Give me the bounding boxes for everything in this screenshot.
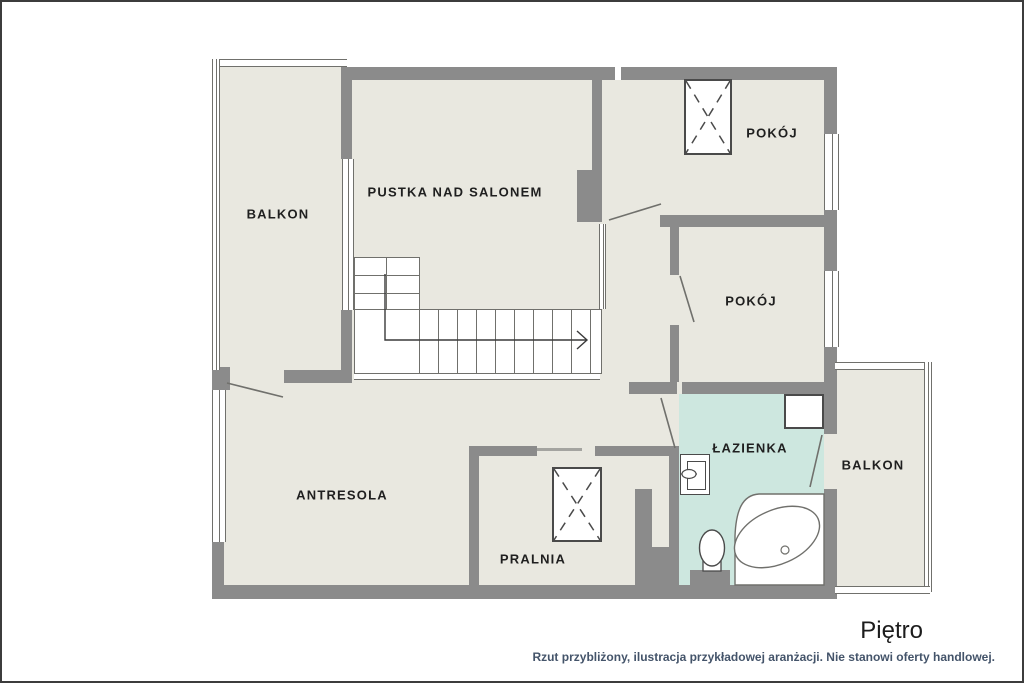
wall-right-3 — [824, 347, 837, 434]
stair-tread — [571, 310, 572, 373]
railing-balcony-left-side — [212, 59, 220, 370]
wall-pralnia-top-east — [595, 446, 679, 456]
room-label-balkon-right: BALKON — [842, 458, 905, 473]
sink-basin — [687, 461, 706, 490]
railing-landing — [599, 224, 606, 309]
stairs-upper-flight — [354, 257, 420, 311]
stair-tread — [476, 310, 477, 373]
window-pustka-balcony — [342, 159, 354, 310]
wall-pustka-pokoj — [592, 80, 602, 170]
window-antresola — [212, 390, 226, 542]
floorplan-canvas: BALKON PUSTKA NAD SALONEM POKÓJ POKÓJ AN… — [0, 0, 1024, 683]
wall-pokoj2-left-lower — [670, 325, 679, 382]
room-label-pralnia: PRALNIA — [500, 552, 566, 567]
room-label-pustka: PUSTKA NAD SALONEM — [368, 185, 543, 200]
wall-bottom — [212, 585, 837, 599]
wall-right-1 — [824, 67, 837, 134]
wall-corridor-north-b — [682, 382, 824, 394]
stair-tread — [590, 310, 591, 373]
floor-balcony-right — [835, 362, 930, 592]
stair-divider — [386, 258, 387, 310]
wall-corridor-north-a — [629, 382, 677, 394]
stair-tread — [495, 310, 496, 373]
railing-balcony-right-bottom — [835, 586, 930, 594]
room-label-pokoj-bottom: POKÓJ — [725, 294, 777, 309]
chimney-strip — [635, 489, 652, 585]
wall-right-4 — [824, 489, 837, 585]
wall-pillar-landing — [577, 170, 602, 222]
stair-tread — [552, 310, 553, 373]
chimney-base — [652, 547, 679, 585]
toilet-pedestal — [690, 570, 730, 585]
floor-title: Piętro — [860, 617, 923, 645]
wall-left-stub — [212, 367, 230, 390]
wall-pralnia-top-west — [469, 446, 537, 456]
window-pokoj-bottom — [824, 271, 839, 347]
wall-right-2 — [824, 210, 837, 271]
stairs-main-run — [354, 309, 602, 374]
skylight-pralnia — [552, 467, 602, 542]
stair-tread — [355, 293, 419, 294]
shower-unit — [784, 394, 824, 429]
floor-west-wing — [214, 59, 347, 599]
wall-balcony-bottom — [284, 370, 352, 383]
railing-balcony-right-top — [835, 362, 930, 370]
wall-joint-gap — [615, 67, 621, 80]
stair-tread — [514, 310, 515, 373]
stair-tread — [438, 310, 439, 373]
stair-tread — [533, 310, 534, 373]
wall-pralnia-left — [469, 456, 479, 585]
room-label-lazienka: ŁAZIENKA — [712, 441, 787, 456]
window-pokoj-top — [824, 134, 839, 210]
wall-balcony-divider-upper — [341, 67, 352, 159]
wall-top — [342, 67, 837, 80]
skylight-pokoj — [684, 79, 732, 155]
stair-tread — [355, 275, 419, 276]
railing-balcony-left-top — [212, 59, 347, 67]
wall-pokoj2-left-upper — [670, 227, 679, 275]
wall-between-rooms — [660, 215, 824, 227]
sliding-door-pralnia — [537, 448, 582, 451]
room-label-balkon-left: BALKON — [247, 207, 310, 222]
stair-tread — [457, 310, 458, 373]
wall-balcony-divider-lower — [341, 310, 352, 376]
railing-balcony-right-side — [924, 362, 932, 592]
stair-tread — [419, 310, 420, 373]
disclaimer-text: Rzut przybliżony, ilustracja przykładowe… — [532, 650, 995, 664]
room-label-antresola: ANTRESOLA — [296, 488, 388, 503]
room-label-pokoj-top: POKÓJ — [746, 126, 798, 141]
